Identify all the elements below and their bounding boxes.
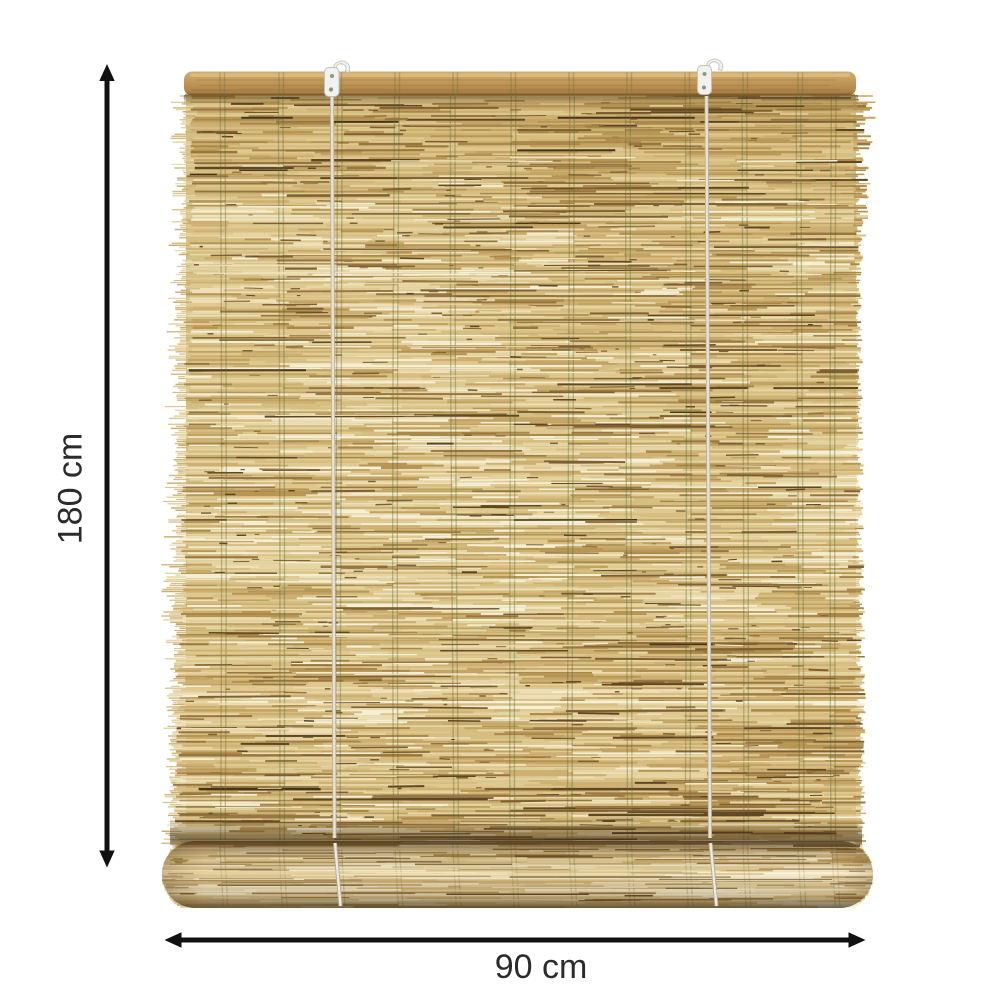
svg-text:180 cm: 180 cm [52, 433, 90, 545]
svg-text:90 cm: 90 cm [495, 948, 588, 986]
